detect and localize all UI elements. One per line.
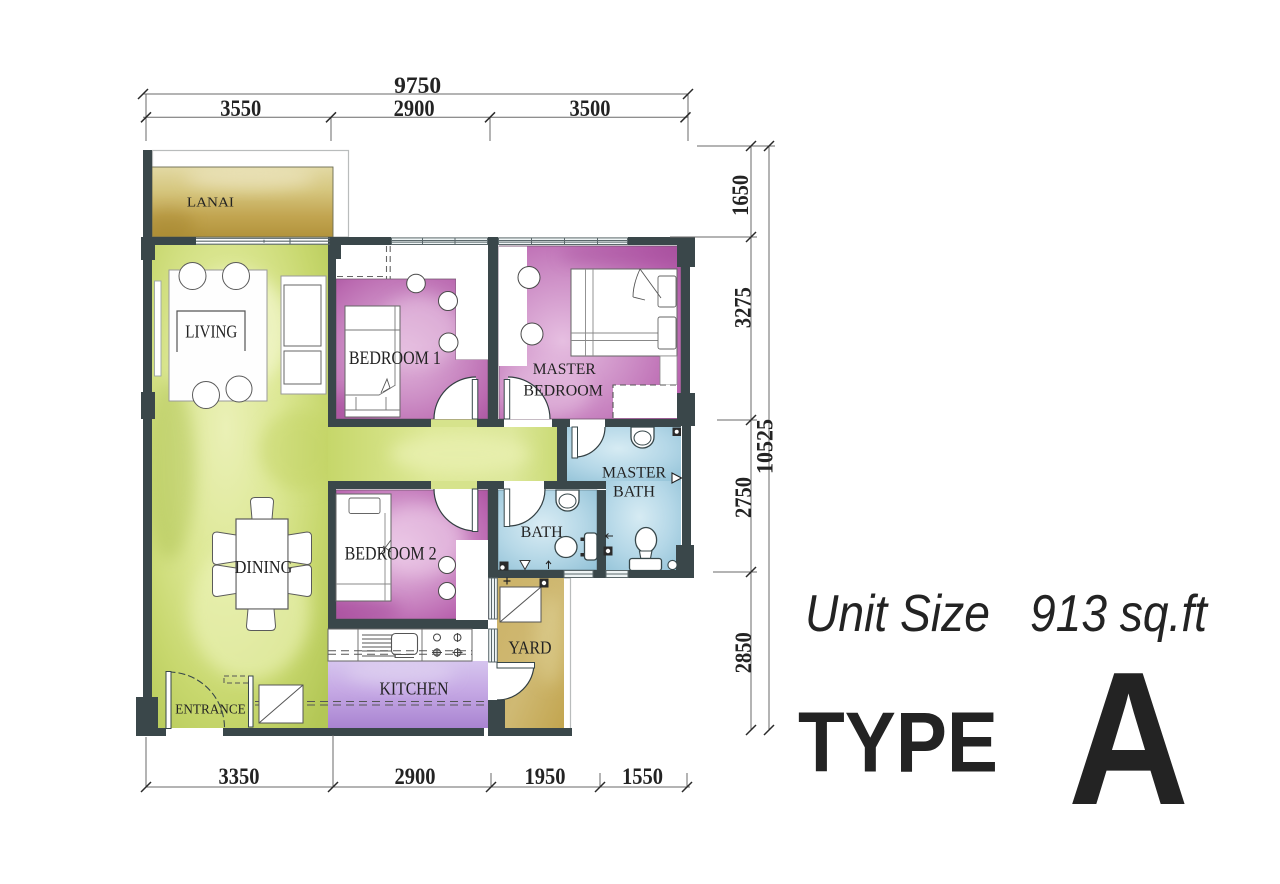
svg-text:BATH: BATH (521, 524, 563, 541)
svg-text:BEDROOM: BEDROOM (523, 383, 603, 400)
svg-text:3275: 3275 (731, 287, 756, 328)
svg-text:9750: 9750 (394, 73, 441, 98)
svg-text:3350: 3350 (219, 764, 260, 789)
svg-text:BATH: BATH (613, 483, 655, 500)
svg-text:YARD: YARD (509, 638, 552, 658)
svg-text:2750: 2750 (731, 477, 756, 518)
svg-text:10525: 10525 (753, 419, 778, 474)
svg-text:DINING: DINING (235, 557, 293, 577)
svg-text:ENTRANCE: ENTRANCE (175, 702, 246, 717)
svg-text:A: A (1068, 633, 1189, 845)
svg-text:KITCHEN: KITCHEN (380, 679, 449, 699)
svg-text:BEDROOM 2: BEDROOM 2 (345, 545, 437, 565)
svg-text:2900: 2900 (394, 96, 435, 121)
svg-text:3550: 3550 (220, 96, 261, 121)
svg-text:LANAI: LANAI (187, 195, 234, 210)
svg-text:1550: 1550 (622, 764, 663, 789)
svg-text:2900: 2900 (395, 764, 436, 789)
svg-text:MASTER: MASTER (602, 464, 667, 481)
svg-text:BEDROOM 1: BEDROOM 1 (349, 349, 441, 369)
svg-text:Unit Size: Unit Size (805, 585, 990, 643)
svg-text:3500: 3500 (570, 96, 611, 121)
svg-text:LIVING: LIVING (185, 321, 237, 341)
svg-text:MASTER: MASTER (533, 361, 597, 378)
svg-text:TYPE: TYPE (798, 696, 998, 791)
svg-text:1650: 1650 (728, 175, 753, 216)
svg-text:2850: 2850 (731, 632, 756, 673)
svg-text:1950: 1950 (525, 764, 566, 789)
